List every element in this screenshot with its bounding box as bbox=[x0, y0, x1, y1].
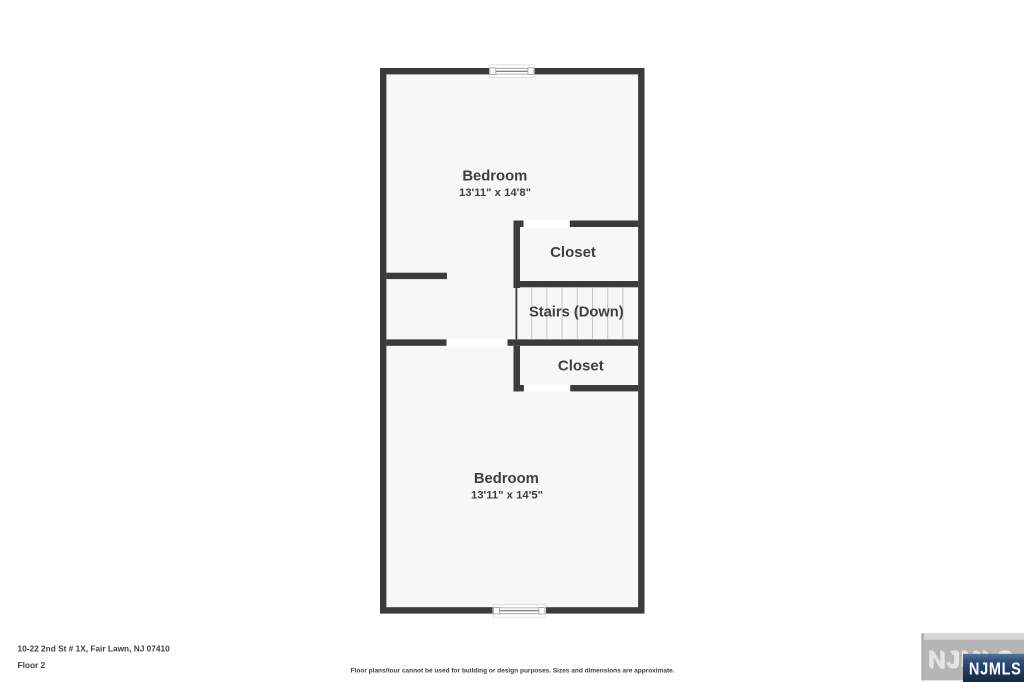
svg-text:Closet: Closet bbox=[558, 358, 604, 375]
svg-text:Stairs (Down): Stairs (Down) bbox=[529, 304, 624, 320]
svg-text:Bedroom: Bedroom bbox=[474, 471, 539, 487]
svg-text:13'11" x 14'8": 13'11" x 14'8" bbox=[459, 187, 531, 199]
svg-text:10-22 2nd St # 1X, Fair Lawn,: 10-22 2nd St # 1X, Fair Lawn, NJ 07410 bbox=[18, 644, 171, 654]
svg-text:NJMLS: NJMLS bbox=[969, 659, 1022, 679]
svg-text:Floor plans/tour cannot be use: Floor plans/tour cannot be used for buil… bbox=[351, 667, 675, 674]
svg-text:Closet: Closet bbox=[550, 244, 596, 261]
svg-text:13'11" x 14'5": 13'11" x 14'5" bbox=[471, 490, 543, 502]
svg-text:Floor 2: Floor 2 bbox=[18, 660, 46, 670]
svg-text:Bedroom: Bedroom bbox=[462, 169, 527, 185]
